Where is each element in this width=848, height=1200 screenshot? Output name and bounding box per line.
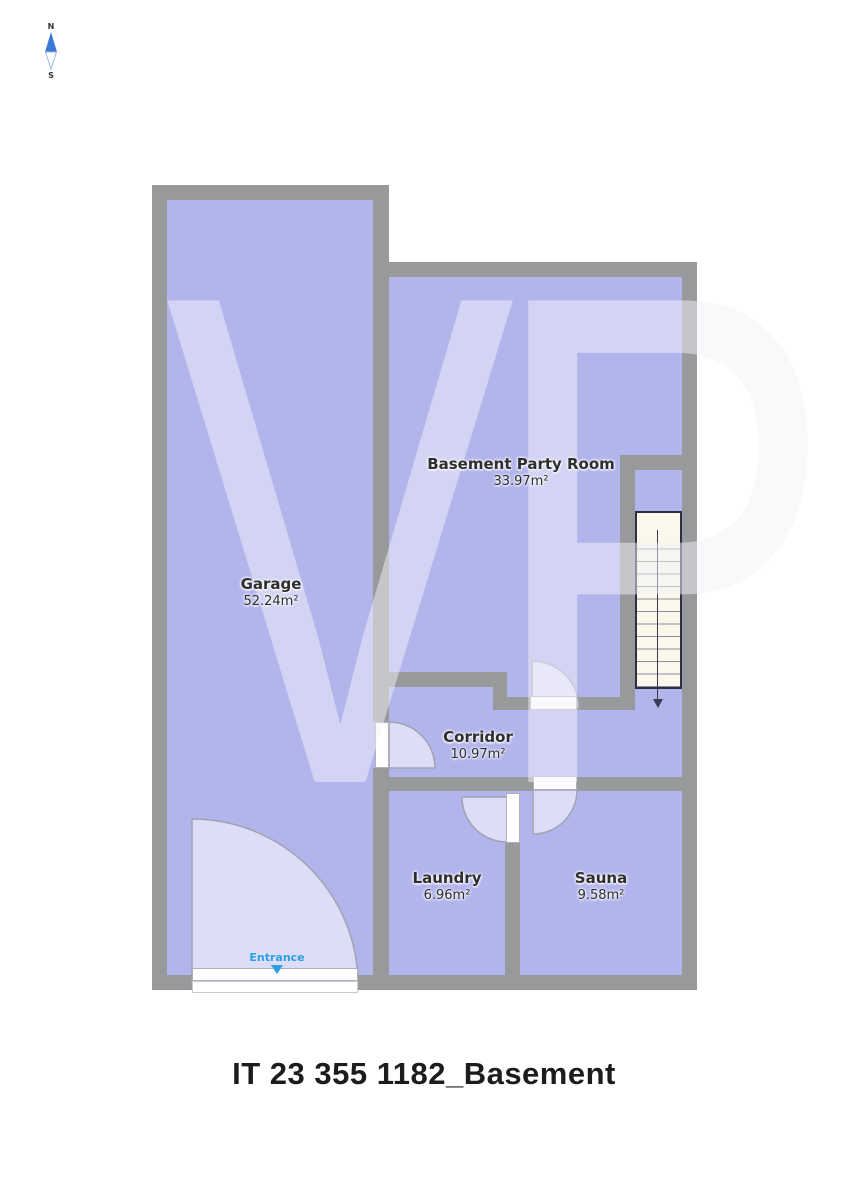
wall-corridor-bottom-right [577, 777, 697, 791]
wall-stairwell-left [620, 455, 635, 710]
room-name: Laundry [413, 869, 482, 887]
laundry-door-arc [462, 797, 507, 842]
compass-north-label: N [48, 22, 55, 31]
room-label-garage: Garage 52.24m² [241, 575, 302, 609]
wall-corridor-top-right-b [577, 697, 633, 710]
entrance-label: Entrance [249, 951, 304, 964]
wall-partyroom-top [373, 262, 697, 277]
garage-corridor-door-arc [389, 722, 435, 768]
stair-down-arrow-icon [653, 699, 663, 708]
entrance-door-threshold [192, 981, 358, 993]
sauna-door-leaf [533, 776, 577, 790]
room-label-laundry: Laundry 6.96m² [413, 869, 482, 903]
room-area: 33.97m² [427, 474, 615, 489]
room-area: 9.58m² [575, 888, 627, 903]
garage-corridor-door-leaf [375, 722, 389, 768]
partyroom-door-leaf [530, 696, 577, 710]
wall-corridor-bottom-left [373, 777, 533, 791]
wall-corridor-top-left [373, 672, 507, 687]
compass-north-needle [45, 32, 57, 52]
wall-outer-right [682, 262, 697, 990]
room-area: 10.97m² [443, 747, 513, 762]
entrance-arrow-icon [271, 965, 283, 974]
stair-direction-line [657, 530, 658, 700]
compass-south-label: S [48, 71, 54, 80]
room-name: Sauna [575, 869, 627, 887]
exterior-notch [389, 185, 697, 262]
stairs [635, 511, 682, 689]
room-name: Garage [241, 575, 302, 593]
compass-south-needle [46, 52, 57, 69]
wall-garage-top [152, 185, 389, 200]
room-label-partyroom: Basement Party Room 33.97m² [427, 455, 615, 489]
compass: N S [38, 22, 64, 80]
room-name: Basement Party Room [427, 455, 615, 473]
room-label-sauna: Sauna 9.58m² [575, 869, 627, 903]
room-label-corridor: Corridor 10.97m² [443, 728, 513, 762]
room-name: Corridor [443, 728, 513, 746]
floorplan-canvas: N S [0, 0, 848, 1200]
stair-treads [637, 537, 680, 687]
wall-outer-left [152, 185, 167, 990]
compass-needle-icon [43, 31, 59, 71]
room-area: 52.24m² [241, 594, 302, 609]
wall-corridor-top-right-a [493, 697, 530, 710]
wall-garage-right-lower [373, 768, 389, 990]
sauna-door-arc [533, 790, 577, 834]
laundry-door-leaf [506, 793, 520, 843]
wall-laundry-sauna-divider [505, 843, 520, 975]
room-area: 6.96m² [413, 888, 482, 903]
page-title: IT 23 355 1182_Basement [0, 1056, 848, 1092]
